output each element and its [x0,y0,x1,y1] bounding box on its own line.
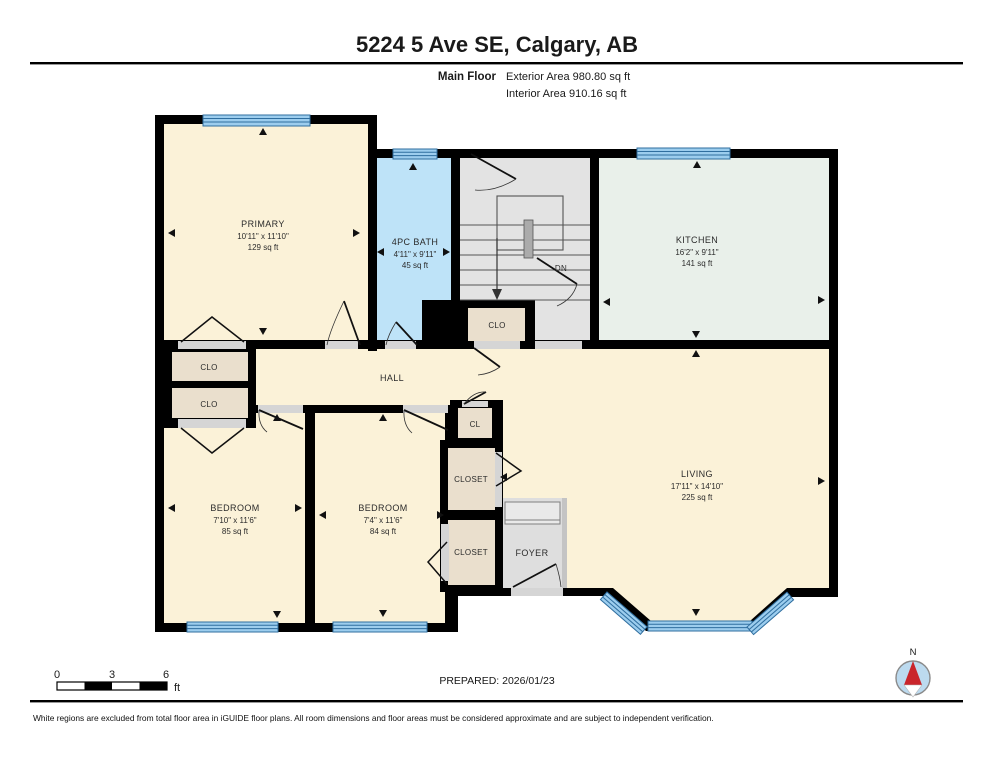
label-bedroom2: BEDROOM [358,503,407,513]
scale-tick-6: 6 [163,669,169,681]
window-bedroom2 [333,622,427,632]
window-bedroom1 [187,622,278,632]
header-rule [30,62,963,64]
compass-north-icon: N [896,647,930,697]
floor-plan-page: 5224 5 Ave SE, Calgary, AB Main Floor Ex… [0,0,993,768]
interior-area: Interior Area 910.16 sq ft [506,88,626,100]
svg-text:85 sq ft: 85 sq ft [222,527,249,536]
label-stairs-dn: DN [555,264,567,273]
page-title: 5224 5 Ave SE, Calgary, AB [356,32,638,57]
svg-text:7'10" x 11'6": 7'10" x 11'6" [213,516,256,525]
exterior-area: Exterior Area 980.80 sq ft [506,71,630,83]
scale-tick-0: 0 [54,669,60,681]
window-primary [203,115,310,126]
compass-north-label: N [910,647,917,658]
svg-text:129 sq ft: 129 sq ft [248,243,279,252]
window-bay-bottom [648,621,752,631]
label-living: LIVING [681,469,713,479]
footer: 0 3 6 ft PREPARED: 2026/01/23 N White re… [30,647,963,723]
label-bedroom1: BEDROOM [210,503,259,513]
svg-text:7'4" x 11'6": 7'4" x 11'6" [364,516,403,525]
scale-bar: 0 3 6 ft [54,669,180,694]
scale-unit: ft [174,682,180,694]
footer-rule [30,700,963,702]
stair-center-rail [524,220,533,258]
window-bath [393,149,437,159]
svg-text:4'11" x 9'11": 4'11" x 9'11" [394,250,437,259]
header: 5224 5 Ave SE, Calgary, AB Main Floor Ex… [30,32,963,100]
window-kitchen [637,148,730,159]
floor-plan-svg: 5224 5 Ave SE, Calgary, AB Main Floor Ex… [0,0,993,768]
svg-text:45 sq ft: 45 sq ft [402,261,429,270]
label-clo-primary: CLO [200,363,217,372]
label-kitchen: KITCHEN [676,235,718,245]
floor-label: Main Floor [438,71,497,83]
label-bath: 4PC BATH [392,237,439,247]
label-cl: CL [470,420,481,429]
disclaimer-text: White regions are excluded from total fl… [33,713,714,723]
svg-text:16'2" x 9'11": 16'2" x 9'11" [675,248,718,257]
label-clo-stairs: CLO [488,321,505,330]
svg-text:225 sq ft: 225 sq ft [682,493,713,502]
label-primary: PRIMARY [241,219,285,229]
label-closet-upper: CLOSET [454,475,488,484]
prepared-date: PREPARED: 2026/01/23 [439,675,555,687]
svg-text:84 sq ft: 84 sq ft [370,527,397,536]
label-hall: HALL [380,373,404,383]
label-foyer: FOYER [515,548,548,558]
scale-tick-3: 3 [109,669,115,681]
foyer-rail [562,498,567,588]
foyer-landing [505,502,560,524]
label-closet-lower: CLOSET [454,548,488,557]
svg-text:141 sq ft: 141 sq ft [682,259,713,268]
svg-text:10'11" x 11'10": 10'11" x 11'10" [237,232,289,241]
svg-text:17'11" x 14'10": 17'11" x 14'10" [671,482,723,491]
label-clo-bedroom1: CLO [200,400,217,409]
